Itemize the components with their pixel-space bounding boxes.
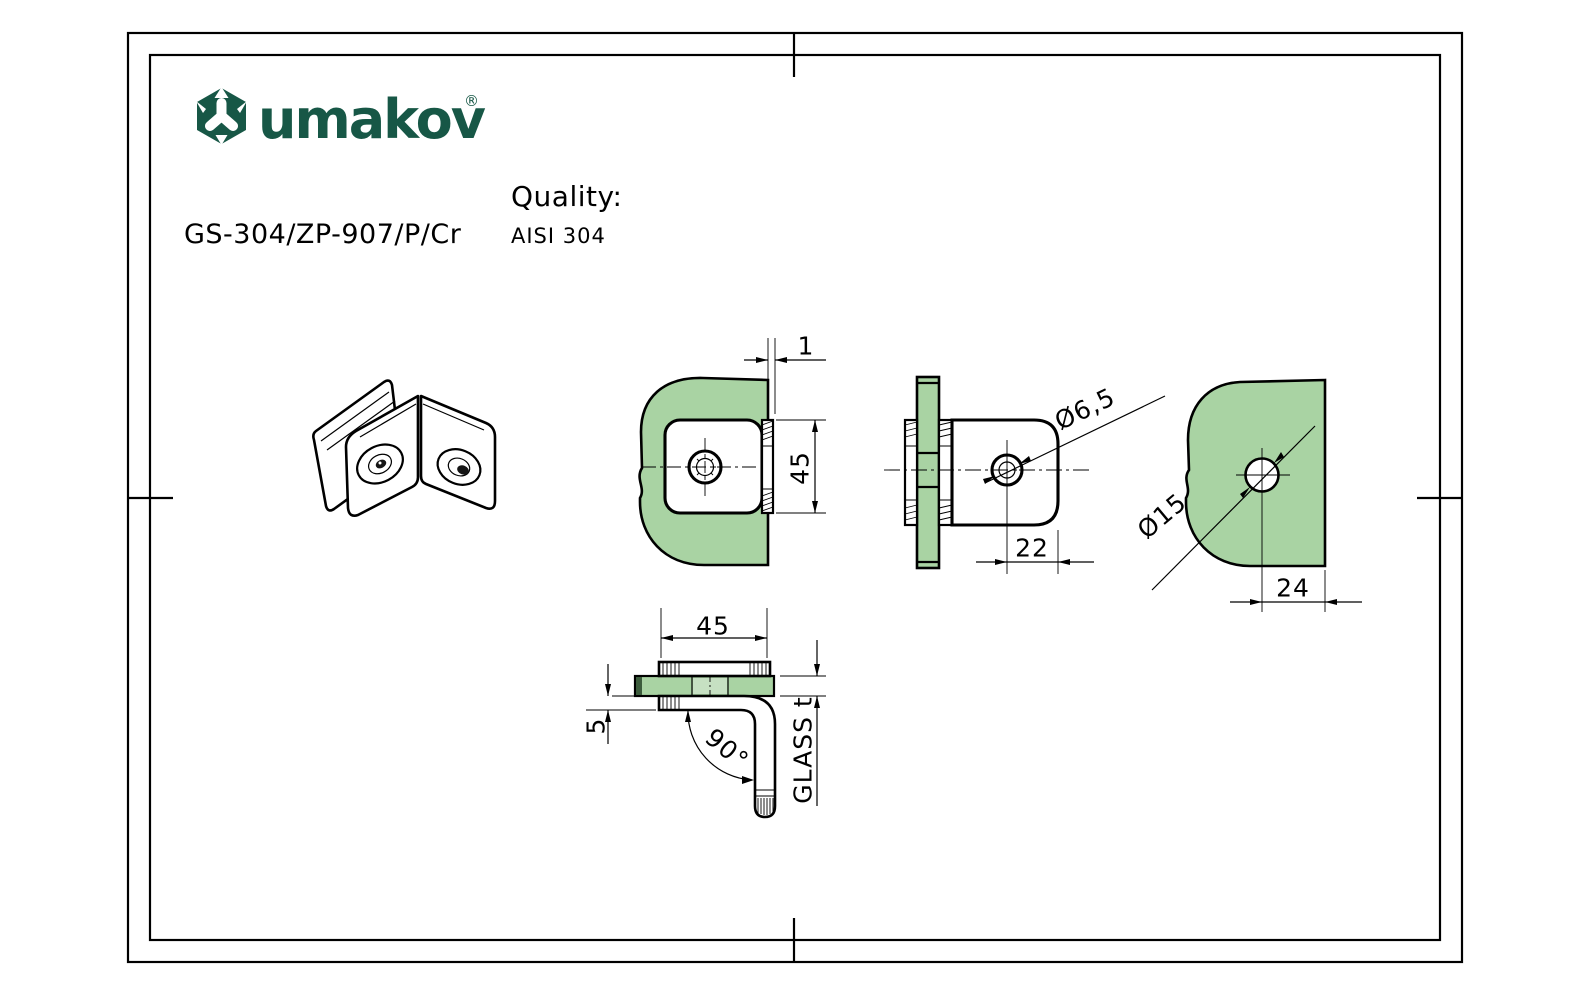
dim-hole-to-edge: 22 <box>1015 534 1049 563</box>
dim-glass-hole-to-edge: 24 <box>1276 574 1310 603</box>
technical-drawing <box>0 0 1590 997</box>
quality-value: AISI 304 <box>511 224 606 248</box>
umakov-hexagon-logo <box>196 87 247 145</box>
view-glass-panel <box>1152 380 1362 612</box>
dim-glass-thickness: GLASS t <box>789 696 818 803</box>
dim-glass-edge-offset: 1 <box>798 332 815 361</box>
dim-plate-thickness: 5 <box>582 718 611 735</box>
part-number: GS-304/ZP-907/P/Cr <box>184 219 461 250</box>
registered-mark: ® <box>464 92 479 110</box>
dim-plate-height: 45 <box>786 451 815 485</box>
view-isometric <box>313 381 495 516</box>
brand-wordmark: umakov <box>258 88 484 151</box>
quality-label: Quality: <box>511 180 622 213</box>
dim-plate-width: 45 <box>696 612 730 641</box>
drawing-sheet: umakov ® GS-304/ZP-907/P/Cr Quality: AIS… <box>0 0 1590 997</box>
